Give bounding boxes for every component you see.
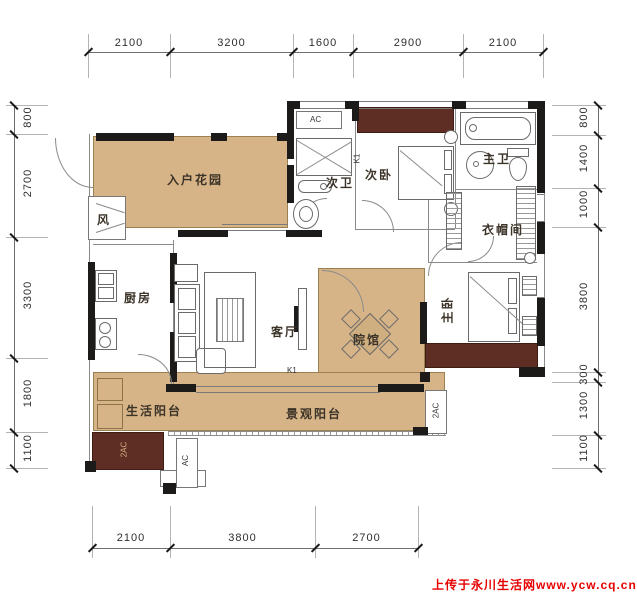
ac-marker-bottom-left: AC	[181, 455, 190, 466]
cloak-shelf-left	[446, 192, 462, 250]
wall	[413, 427, 428, 435]
dim-bottom-1: 2100	[92, 532, 170, 544]
wall	[420, 372, 430, 382]
wall	[420, 302, 427, 344]
wall	[537, 222, 545, 254]
ext-line	[543, 34, 544, 78]
dim-line-right	[598, 105, 599, 469]
wall	[519, 367, 545, 377]
ac-marker-top: AC	[310, 115, 321, 124]
nightstand	[522, 316, 537, 336]
wall	[166, 384, 196, 392]
label-master-bedroom: 主卧	[439, 295, 456, 323]
dim-right-3: 1000	[578, 174, 590, 234]
wall	[88, 262, 95, 360]
bed2-door-arc	[362, 200, 394, 232]
ext-line	[418, 506, 419, 558]
top-window	[300, 101, 529, 109]
dim-top-5: 2100	[463, 37, 543, 49]
label-kitchen: 厨房	[124, 289, 152, 306]
label-second-bedroom: 次卧	[365, 166, 393, 183]
sofa-cushion	[178, 336, 196, 358]
wall	[287, 165, 294, 203]
masterbath-toilet	[509, 157, 527, 181]
label-air-shaft: 风	[97, 211, 111, 228]
k1-marker-lower: K1	[287, 366, 297, 375]
label-master-bath: 主卫	[483, 150, 511, 167]
dim-bottom-3: 2700	[315, 532, 418, 544]
kitchen-top-line	[93, 244, 173, 245]
label-second-bath: 次卫	[326, 174, 354, 191]
label-cloakroom: 衣帽间	[482, 221, 524, 238]
balcony-appliance	[97, 404, 123, 429]
dim-left-1: 800	[22, 87, 34, 147]
entry-door-arc	[55, 138, 93, 188]
wall	[452, 101, 466, 109]
dim-top-1: 2100	[88, 37, 170, 49]
k1-marker-upper: K1	[352, 154, 361, 164]
bed2-pillow	[444, 174, 452, 194]
label-entry-garden: 入户花园	[167, 171, 223, 188]
dim-left-2: 2700	[22, 153, 34, 213]
master-stool	[524, 252, 536, 264]
balcony-appliance	[97, 378, 123, 401]
cloak-left-line	[428, 189, 429, 263]
wall	[345, 101, 359, 109]
dim-left-3: 3300	[22, 265, 34, 325]
ac-marker-planter: 2AC	[119, 442, 128, 458]
sofa-cushion	[178, 288, 196, 310]
balcony-slider	[196, 386, 380, 393]
basin-drain	[473, 161, 479, 167]
label-view-balcony: 景观阳台	[286, 405, 342, 422]
dim-line-left	[14, 105, 15, 469]
bath2-bed2-divider	[355, 121, 356, 229]
wall	[378, 384, 424, 392]
garden-slider	[222, 224, 288, 231]
label-courtyard: 院馆	[353, 331, 381, 348]
nightstand	[522, 276, 537, 296]
tub-drain	[469, 124, 477, 132]
dim-right-4: 3800	[578, 266, 590, 326]
master-pillow	[508, 278, 517, 304]
wall	[85, 461, 96, 472]
wall	[211, 133, 227, 141]
wall	[178, 230, 228, 237]
master-bed-bay	[425, 343, 538, 368]
balcony-railing	[168, 431, 446, 436]
cloak-door-arc	[468, 236, 494, 262]
sofa-cushion	[178, 312, 196, 334]
label-service-balcony: 生活阳台	[126, 402, 182, 419]
tv-console	[298, 288, 307, 350]
wall	[537, 109, 545, 193]
toilet-bowl	[299, 206, 313, 222]
second-bedroom-wardrobe	[357, 107, 454, 133]
dim-top-2: 3200	[170, 37, 293, 49]
floorplan-canvas: 2100 3200 1600 2900 2100 2100 3800 2700	[0, 0, 637, 600]
bed2-pillow	[444, 150, 452, 170]
wall	[352, 109, 359, 121]
wall	[537, 298, 545, 346]
dim-line-top	[88, 52, 544, 53]
wall	[287, 101, 300, 109]
wall	[287, 109, 294, 159]
watermark-text: 上传于永川生活网www.ycw.cq.cn	[432, 576, 637, 593]
dim-left-4: 1800	[22, 363, 34, 423]
wall	[96, 133, 174, 141]
stove-burner	[99, 336, 111, 348]
coffee-table	[216, 298, 244, 342]
kitchen-door-arc	[138, 354, 172, 384]
dim-left-5: 1100	[22, 418, 34, 478]
wall	[163, 483, 176, 494]
wall	[528, 101, 545, 109]
kitchen-sink-bowl	[98, 287, 114, 299]
ac-marker-right: 2AC	[431, 403, 440, 419]
dim-right-7: 1100	[578, 418, 590, 478]
wall	[286, 230, 322, 237]
dim-bottom-2: 3800	[170, 532, 315, 544]
label-living-room: 客厅	[271, 323, 299, 340]
bed2-stool	[444, 130, 458, 144]
kitchen-sink-bowl	[98, 273, 114, 285]
side-table	[174, 264, 198, 282]
dim-top-3: 1600	[293, 37, 353, 49]
dim-top-4: 2900	[353, 37, 463, 49]
stove-burner	[99, 322, 111, 334]
dim-line-bottom	[92, 548, 419, 549]
